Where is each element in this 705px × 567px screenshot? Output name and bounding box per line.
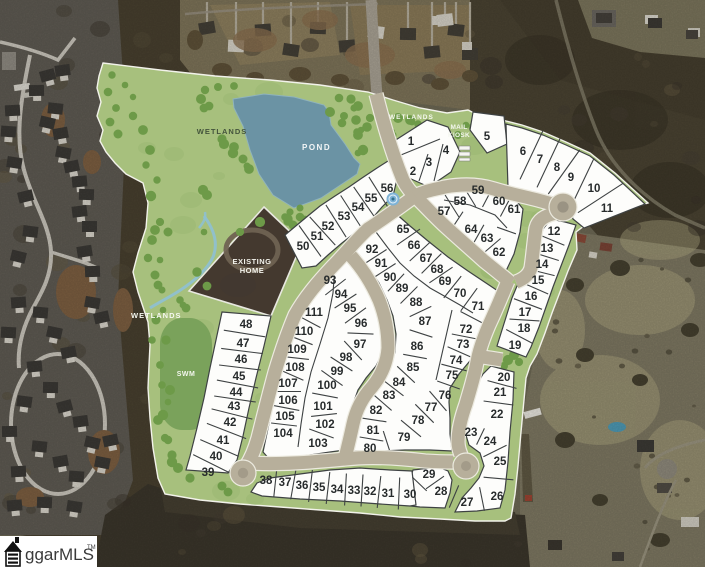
svg-text:100: 100 xyxy=(317,380,336,392)
svg-text:46: 46 xyxy=(235,354,248,366)
svg-text:40: 40 xyxy=(210,451,223,463)
svg-text:78: 78 xyxy=(412,415,425,427)
svg-text:35: 35 xyxy=(313,482,326,494)
svg-text:25: 25 xyxy=(494,456,507,468)
svg-text:87: 87 xyxy=(419,316,432,328)
svg-text:48: 48 xyxy=(240,319,253,331)
svg-text:38: 38 xyxy=(260,475,273,487)
svg-text:WETLANDS: WETLANDS xyxy=(389,114,434,121)
svg-text:8: 8 xyxy=(554,162,561,174)
svg-text:12: 12 xyxy=(548,226,561,238)
svg-text:54: 54 xyxy=(352,202,365,214)
svg-text:81: 81 xyxy=(367,425,380,437)
svg-text:6: 6 xyxy=(520,146,526,158)
svg-text:57: 57 xyxy=(438,206,451,218)
svg-text:20: 20 xyxy=(498,372,511,384)
svg-text:84: 84 xyxy=(393,377,406,389)
svg-text:3: 3 xyxy=(426,157,432,169)
svg-text:15: 15 xyxy=(532,275,545,287)
svg-text:109: 109 xyxy=(287,344,306,356)
svg-text:HOME: HOME xyxy=(240,266,265,275)
svg-text:59: 59 xyxy=(472,185,485,197)
svg-text:104: 104 xyxy=(273,428,293,440)
svg-text:14: 14 xyxy=(536,259,549,271)
svg-text:50: 50 xyxy=(297,241,310,253)
svg-text:WETLANDS: WETLANDS xyxy=(131,311,182,320)
svg-text:73: 73 xyxy=(457,339,470,351)
svg-text:13: 13 xyxy=(541,243,554,255)
svg-text:76: 76 xyxy=(439,390,452,402)
svg-text:28: 28 xyxy=(435,486,448,498)
svg-text:34: 34 xyxy=(331,484,344,496)
svg-text:91: 91 xyxy=(375,258,388,270)
svg-text:95: 95 xyxy=(344,303,357,315)
svg-text:30: 30 xyxy=(404,489,417,501)
svg-text:110: 110 xyxy=(295,326,314,338)
svg-text:19: 19 xyxy=(509,340,522,352)
svg-text:62: 62 xyxy=(493,247,506,259)
svg-text:24: 24 xyxy=(484,436,497,448)
svg-text:70: 70 xyxy=(454,288,467,300)
svg-text:82: 82 xyxy=(370,405,383,417)
svg-text:64: 64 xyxy=(465,224,478,236)
svg-text:80: 80 xyxy=(364,443,377,455)
svg-text:60: 60 xyxy=(493,196,506,208)
svg-text:103: 103 xyxy=(308,438,327,450)
svg-text:47: 47 xyxy=(237,338,250,350)
svg-text:96: 96 xyxy=(355,318,368,330)
svg-text:39: 39 xyxy=(202,467,215,479)
svg-text:11: 11 xyxy=(601,203,614,215)
svg-text:55: 55 xyxy=(365,193,378,205)
svg-text:69: 69 xyxy=(439,276,452,288)
svg-text:9: 9 xyxy=(568,172,574,184)
svg-text:1: 1 xyxy=(408,136,415,148)
svg-text:26: 26 xyxy=(491,491,504,503)
svg-text:23: 23 xyxy=(465,427,478,439)
svg-text:29: 29 xyxy=(423,469,436,481)
svg-text:53: 53 xyxy=(338,211,351,223)
svg-text:92: 92 xyxy=(366,244,379,256)
svg-text:32: 32 xyxy=(364,486,377,498)
svg-text:74: 74 xyxy=(450,355,463,367)
svg-text:85: 85 xyxy=(407,362,420,374)
svg-text:111: 111 xyxy=(305,307,324,319)
svg-text:101: 101 xyxy=(313,401,333,413)
svg-text:4: 4 xyxy=(443,145,450,157)
svg-text:97: 97 xyxy=(354,339,367,351)
svg-text:21: 21 xyxy=(494,387,507,399)
svg-text:37: 37 xyxy=(279,477,292,489)
svg-text:106: 106 xyxy=(278,395,297,407)
svg-text:98: 98 xyxy=(340,352,353,364)
svg-text:44: 44 xyxy=(230,387,243,399)
svg-text:WETLANDS: WETLANDS xyxy=(197,127,248,136)
svg-text:83: 83 xyxy=(383,390,396,402)
svg-text:18: 18 xyxy=(518,323,531,335)
svg-text:EXISTING: EXISTING xyxy=(232,257,271,266)
svg-text:17: 17 xyxy=(519,307,532,319)
svg-text:52: 52 xyxy=(322,221,335,233)
svg-text:22: 22 xyxy=(491,409,504,421)
svg-text:33: 33 xyxy=(348,485,361,497)
svg-text:89: 89 xyxy=(396,283,409,295)
svg-text:99: 99 xyxy=(331,366,344,378)
svg-text:61: 61 xyxy=(508,204,521,216)
svg-text:88: 88 xyxy=(410,297,423,309)
svg-text:72: 72 xyxy=(460,324,473,336)
svg-text:65: 65 xyxy=(397,224,410,236)
svg-text:56: 56 xyxy=(381,183,394,195)
svg-text:105: 105 xyxy=(275,411,295,423)
svg-text:68: 68 xyxy=(431,264,444,276)
svg-text:71: 71 xyxy=(472,301,485,313)
svg-text:SWM: SWM xyxy=(177,371,196,378)
svg-text:2: 2 xyxy=(410,166,416,178)
svg-text:36: 36 xyxy=(296,480,309,492)
svg-text:45: 45 xyxy=(233,371,246,383)
svg-text:16: 16 xyxy=(525,291,538,303)
svg-text:66: 66 xyxy=(408,240,421,252)
svg-text:MAIL: MAIL xyxy=(450,124,467,131)
svg-text:79: 79 xyxy=(398,432,411,444)
svg-text:107: 107 xyxy=(278,378,297,390)
svg-text:TM: TM xyxy=(87,545,96,551)
svg-text:7: 7 xyxy=(537,154,543,166)
svg-text:5: 5 xyxy=(484,131,491,143)
svg-text:75: 75 xyxy=(446,370,459,382)
svg-text:86: 86 xyxy=(411,341,424,353)
svg-text:58: 58 xyxy=(454,196,467,208)
svg-text:POND: POND xyxy=(302,143,331,152)
svg-text:27: 27 xyxy=(461,497,474,509)
svg-text:77: 77 xyxy=(425,402,438,414)
svg-text:10: 10 xyxy=(588,183,601,195)
svg-text:63: 63 xyxy=(481,233,494,245)
svg-text:102: 102 xyxy=(315,419,334,431)
svg-text:108: 108 xyxy=(285,362,305,374)
svg-text:43: 43 xyxy=(228,401,241,413)
svg-text:90: 90 xyxy=(384,272,397,284)
svg-text:31: 31 xyxy=(382,488,395,500)
svg-text:41: 41 xyxy=(217,435,230,447)
svg-text:93: 93 xyxy=(324,275,337,287)
svg-text:ggarMLS: ggarMLS xyxy=(25,545,94,564)
svg-text:42: 42 xyxy=(224,417,237,429)
svg-text:KIOSK: KIOSK xyxy=(448,132,470,139)
svg-text:94: 94 xyxy=(335,289,348,301)
